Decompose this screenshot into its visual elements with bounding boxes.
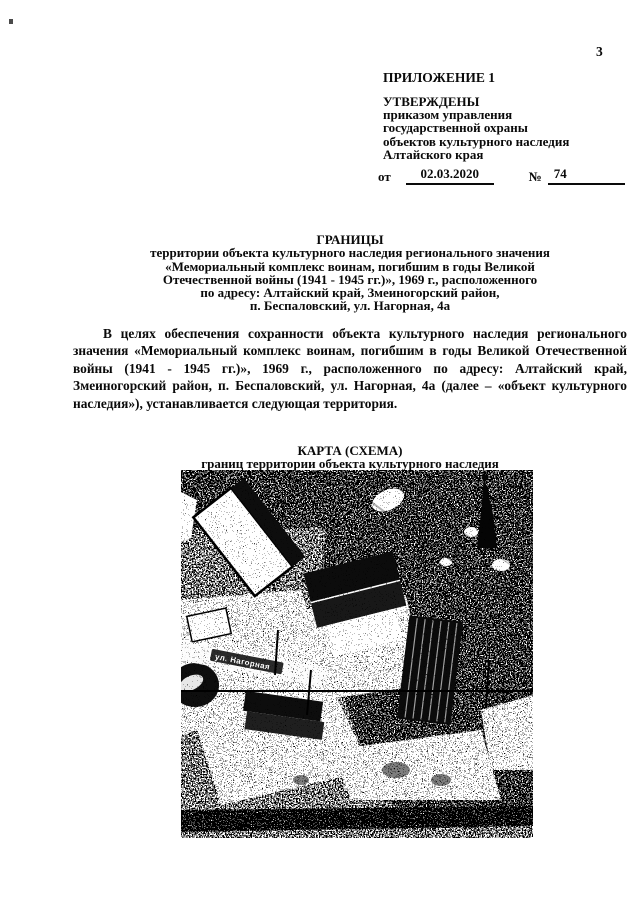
page-number: 3	[596, 44, 603, 60]
title-line: п. Беспаловский, ул. Нагорная, 4а	[73, 299, 627, 312]
body-paragraph: В целях обеспечения сохранности объекта …	[73, 325, 627, 412]
approved-by-line: государственной охраны	[383, 121, 569, 134]
title-line: «Мемориальный комплекс воинам, погибшим …	[73, 260, 627, 273]
approved-by-line: Алтайского края	[383, 148, 569, 161]
approval-block: УТВЕРЖДЕНЫ приказом управления государст…	[383, 95, 569, 161]
annex-label: ПРИЛОЖЕНИЕ 1	[383, 70, 495, 86]
document-title: ГРАНИЦЫ территории объекта культурного н…	[73, 233, 627, 313]
title-line: Отечественной войны (1941 - 1945 гг.)», …	[73, 273, 627, 286]
order-date-value: 02.03.2020	[406, 166, 494, 185]
title-heading: ГРАНИЦЫ	[73, 233, 627, 246]
document-page: 3 ПРИЛОЖЕНИЕ 1 УТВЕРЖДЕНЫ приказом управ…	[0, 0, 640, 905]
title-line: территории объекта культурного наследия …	[73, 246, 627, 259]
order-date-number-line: от 02.03.2020 № 74	[378, 166, 625, 185]
map-title: КАРТА (СХЕМА)	[73, 444, 627, 457]
scan-artifact-speck	[9, 19, 13, 24]
film-grain-overlay	[181, 470, 533, 838]
order-number-sign: №	[529, 169, 542, 185]
map-image: ул. Нагорная	[181, 470, 533, 838]
approved-by-line: объектов культурного наследия	[383, 135, 569, 148]
map-schema-svg: ул. Нагорная	[181, 470, 533, 838]
map-subtitle: границ территории объекта культурного на…	[73, 457, 627, 470]
map-heading-block: КАРТА (СХЕМА) границ территории объекта …	[73, 444, 627, 471]
order-number-value: 74	[548, 166, 625, 185]
order-from-label: от	[378, 169, 391, 185]
title-line: по адресу: Алтайский край, Змеиногорский…	[73, 286, 627, 299]
